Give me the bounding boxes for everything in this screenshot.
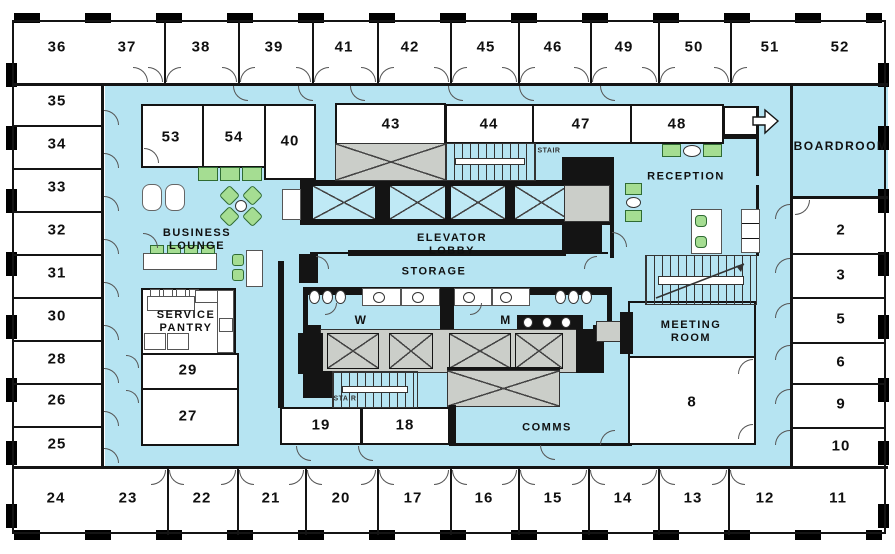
wall: [312, 22, 314, 83]
service-shaft: [335, 143, 447, 181]
room-label-52: 52: [831, 39, 850, 56]
wall: [793, 383, 886, 385]
elevator-car: [312, 185, 376, 220]
wall: [518, 22, 520, 83]
stair-rail: [455, 158, 525, 165]
pantry-appliance: [167, 333, 189, 350]
boardroom-label: BOARDROOM: [794, 139, 889, 153]
toilet: [412, 292, 424, 303]
sink: [335, 290, 346, 304]
stair-rail: [342, 386, 408, 393]
elevator-lobby-label: ELEVATOR LOBBY: [405, 232, 500, 258]
room-label-47: 47: [572, 116, 591, 133]
room-label-44: 44: [480, 116, 499, 133]
room-label-26: 26: [48, 392, 67, 409]
room-label-15: 15: [544, 490, 563, 507]
room-label-22: 22: [193, 490, 212, 507]
room-label-54: 54: [225, 129, 244, 146]
room-label-34: 34: [48, 136, 67, 153]
side-table: [683, 145, 701, 157]
lounge-seat: [220, 167, 240, 181]
room-label-13: 13: [684, 490, 703, 507]
desk-chair: [232, 254, 244, 266]
wall: [793, 297, 886, 299]
wall: [237, 469, 239, 535]
meeting-room-label: MEETING ROOM: [656, 319, 726, 345]
side-table: [626, 197, 641, 208]
wall: [728, 469, 730, 535]
urinal: [542, 317, 552, 328]
room-label-21: 21: [262, 490, 281, 507]
wall: [588, 469, 590, 535]
room-label-19: 19: [312, 417, 331, 434]
core-wall: [303, 371, 334, 398]
wall: [278, 261, 284, 408]
wall: [14, 340, 101, 342]
waiting-chair: [703, 144, 722, 157]
toilet: [500, 292, 512, 303]
room-label-30: 30: [48, 308, 67, 325]
pantry-appliance: [144, 333, 166, 350]
entry-arrow-icon: [752, 108, 780, 135]
room-label-46: 46: [544, 39, 563, 56]
room-label-16: 16: [475, 490, 494, 507]
service-pantry-label: SERVICE PANTRY: [146, 309, 226, 335]
wall: [450, 469, 452, 535]
sink: [568, 290, 579, 304]
room-label-14: 14: [614, 490, 633, 507]
restroom-men-label: M: [500, 313, 512, 327]
elevator-car: [515, 333, 563, 369]
lobby-cabinet: [282, 189, 301, 220]
room-label-42: 42: [401, 39, 420, 56]
lounge-table: [235, 200, 247, 212]
core-wall: [562, 157, 612, 184]
room-label-18: 18: [396, 417, 415, 434]
room-label-33: 33: [48, 179, 67, 196]
room-label-39: 39: [265, 39, 284, 56]
room-label-24: 24: [47, 490, 66, 507]
lounge-desk: [246, 250, 263, 287]
wall: [14, 297, 101, 299]
room-label-31: 31: [48, 265, 67, 282]
armchair: [165, 184, 185, 211]
room-label-28: 28: [48, 351, 67, 368]
wall: [14, 125, 101, 127]
comms-label: COMMS: [522, 422, 572, 435]
wall: [793, 427, 886, 429]
cabinet-shelf: [742, 223, 759, 224]
room-label-10: 10: [832, 438, 851, 455]
wall: [377, 22, 379, 83]
elevator-car: [450, 185, 506, 220]
waiting-chair: [662, 144, 681, 157]
sink: [555, 290, 566, 304]
wall: [790, 83, 793, 469]
toilet: [463, 292, 475, 303]
office-chair: [695, 236, 707, 248]
room-label-36: 36: [48, 39, 67, 56]
room-label-3: 3: [836, 267, 845, 284]
wall: [790, 196, 888, 199]
stair-direction-arrow: [648, 258, 754, 302]
room-label-9: 9: [836, 396, 845, 413]
room-label-20: 20: [332, 490, 351, 507]
business-lounge-label: BUSINESS LOUNGE: [147, 227, 247, 253]
room-label-25: 25: [48, 436, 67, 453]
service-room: [564, 185, 610, 222]
office-chair: [695, 215, 707, 227]
room-label-49: 49: [615, 39, 634, 56]
sink: [581, 290, 592, 304]
room-label-11: 11: [829, 490, 847, 507]
storage-label: STORAGE: [402, 266, 467, 279]
wall: [518, 469, 520, 535]
urinal: [523, 317, 533, 328]
room-label-8: 8: [687, 394, 696, 411]
wall: [564, 252, 608, 254]
reception-cabinet: [741, 209, 760, 253]
pantry-counter: [195, 290, 219, 303]
room-label-50: 50: [685, 39, 704, 56]
wall: [793, 253, 886, 255]
room-label-12: 12: [756, 490, 775, 507]
stair-upper-label: STAIR: [538, 148, 561, 155]
core-wall: [620, 312, 633, 354]
wall: [14, 383, 101, 385]
wall: [14, 426, 101, 428]
room-label-6: 6: [836, 354, 845, 371]
elevator-car: [327, 333, 379, 369]
wall: [238, 22, 240, 83]
room-label-35: 35: [48, 93, 67, 110]
sink: [309, 290, 320, 304]
urinal: [561, 317, 571, 328]
room-label-53: 53: [162, 129, 181, 146]
toilet: [373, 292, 385, 303]
reception-label: RECEPTION: [647, 171, 725, 184]
wall: [449, 405, 456, 446]
armchair: [142, 184, 162, 211]
room-label-2: 2: [836, 222, 845, 239]
wall: [14, 168, 101, 170]
core-wall: [298, 333, 323, 374]
room-label-27: 27: [179, 408, 198, 425]
service-shaft: [447, 370, 560, 407]
elevator-car: [389, 333, 433, 369]
wall: [658, 469, 660, 535]
cabinet-shelf: [742, 238, 759, 239]
elevator-car: [449, 333, 511, 369]
wall: [658, 22, 660, 83]
lounge-seat: [242, 167, 262, 181]
room-label-5: 5: [836, 311, 845, 328]
room-label-43: 43: [382, 116, 401, 133]
sink: [322, 290, 333, 304]
wall: [450, 22, 452, 83]
room-label-32: 32: [48, 222, 67, 239]
wall: [305, 469, 307, 535]
wall: [377, 469, 379, 535]
floor-plan-canvas: 36 37 38 39 41 42 45 46 49 50 51 52 35 3…: [0, 0, 895, 554]
wall: [164, 22, 166, 83]
desk-chair: [232, 269, 244, 281]
room-label-29: 29: [179, 362, 198, 379]
room-label-38: 38: [192, 39, 211, 56]
wall: [167, 469, 169, 535]
waiting-chair: [625, 210, 642, 222]
room-label-45: 45: [477, 39, 496, 56]
wall: [14, 254, 101, 256]
wall: [730, 22, 732, 83]
room-label-37: 37: [118, 39, 137, 56]
core-wall: [562, 223, 602, 252]
wall: [14, 211, 101, 213]
lounge-seat: [198, 167, 218, 181]
room-label-48: 48: [668, 116, 687, 133]
room-label-23: 23: [119, 490, 138, 507]
restroom-divider: [440, 287, 454, 334]
room-label-40: 40: [281, 133, 300, 150]
waiting-chair: [625, 183, 642, 195]
bar-counter: [143, 253, 217, 270]
stair-lower-label: STAIR: [334, 396, 357, 403]
room-label-51: 51: [761, 39, 780, 56]
room-label-41: 41: [335, 39, 354, 56]
elevator-car: [514, 185, 569, 220]
wall: [793, 342, 886, 344]
restroom-women-label: W: [355, 313, 368, 327]
room-label-17: 17: [404, 490, 423, 507]
elevator-car: [389, 185, 446, 220]
wall: [590, 22, 592, 83]
